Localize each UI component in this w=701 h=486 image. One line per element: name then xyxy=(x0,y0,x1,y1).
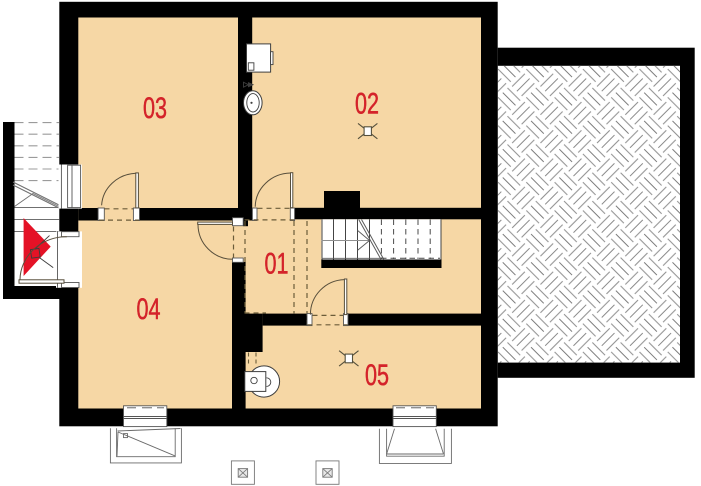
svg-text:04: 04 xyxy=(136,291,160,325)
svg-text:03: 03 xyxy=(143,90,167,124)
svg-text:05: 05 xyxy=(365,357,389,391)
svg-text:02: 02 xyxy=(355,86,379,120)
svg-text:01: 01 xyxy=(264,246,288,280)
